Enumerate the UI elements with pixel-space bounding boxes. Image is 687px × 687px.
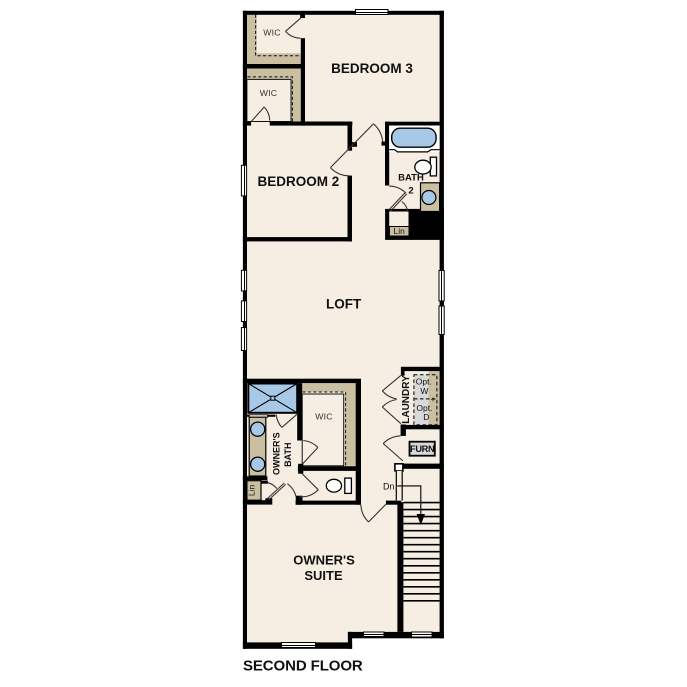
svg-text:LOFT: LOFT	[326, 297, 362, 312]
svg-text:W: W	[420, 386, 428, 396]
svg-text:BATH: BATH	[283, 443, 293, 467]
svg-text:WIC: WIC	[315, 411, 333, 421]
svg-text:OWNER'S: OWNER'S	[271, 432, 281, 475]
svg-text:WIC: WIC	[260, 88, 278, 98]
svg-text:BEDROOM 2: BEDROOM 2	[258, 174, 340, 189]
svg-text:Lin: Lin	[394, 226, 406, 236]
svg-text:WIC: WIC	[263, 27, 281, 37]
svg-text:SECOND FLOOR: SECOND FLOOR	[243, 658, 363, 675]
svg-text:D: D	[423, 412, 429, 422]
svg-text:BEDROOM 3: BEDROOM 3	[331, 61, 413, 76]
svg-text:SUITE: SUITE	[304, 568, 343, 583]
svg-text:Lin: Lin	[247, 485, 257, 497]
svg-text:Dn: Dn	[383, 481, 395, 491]
svg-text:Opt.: Opt.	[416, 377, 432, 387]
svg-text:OWNER'S: OWNER'S	[293, 553, 355, 568]
svg-text:FURN: FURN	[410, 444, 435, 454]
svg-text:LAUNDRY: LAUNDRY	[401, 375, 412, 424]
svg-text:2: 2	[408, 186, 413, 197]
svg-text:BATH: BATH	[398, 173, 424, 184]
